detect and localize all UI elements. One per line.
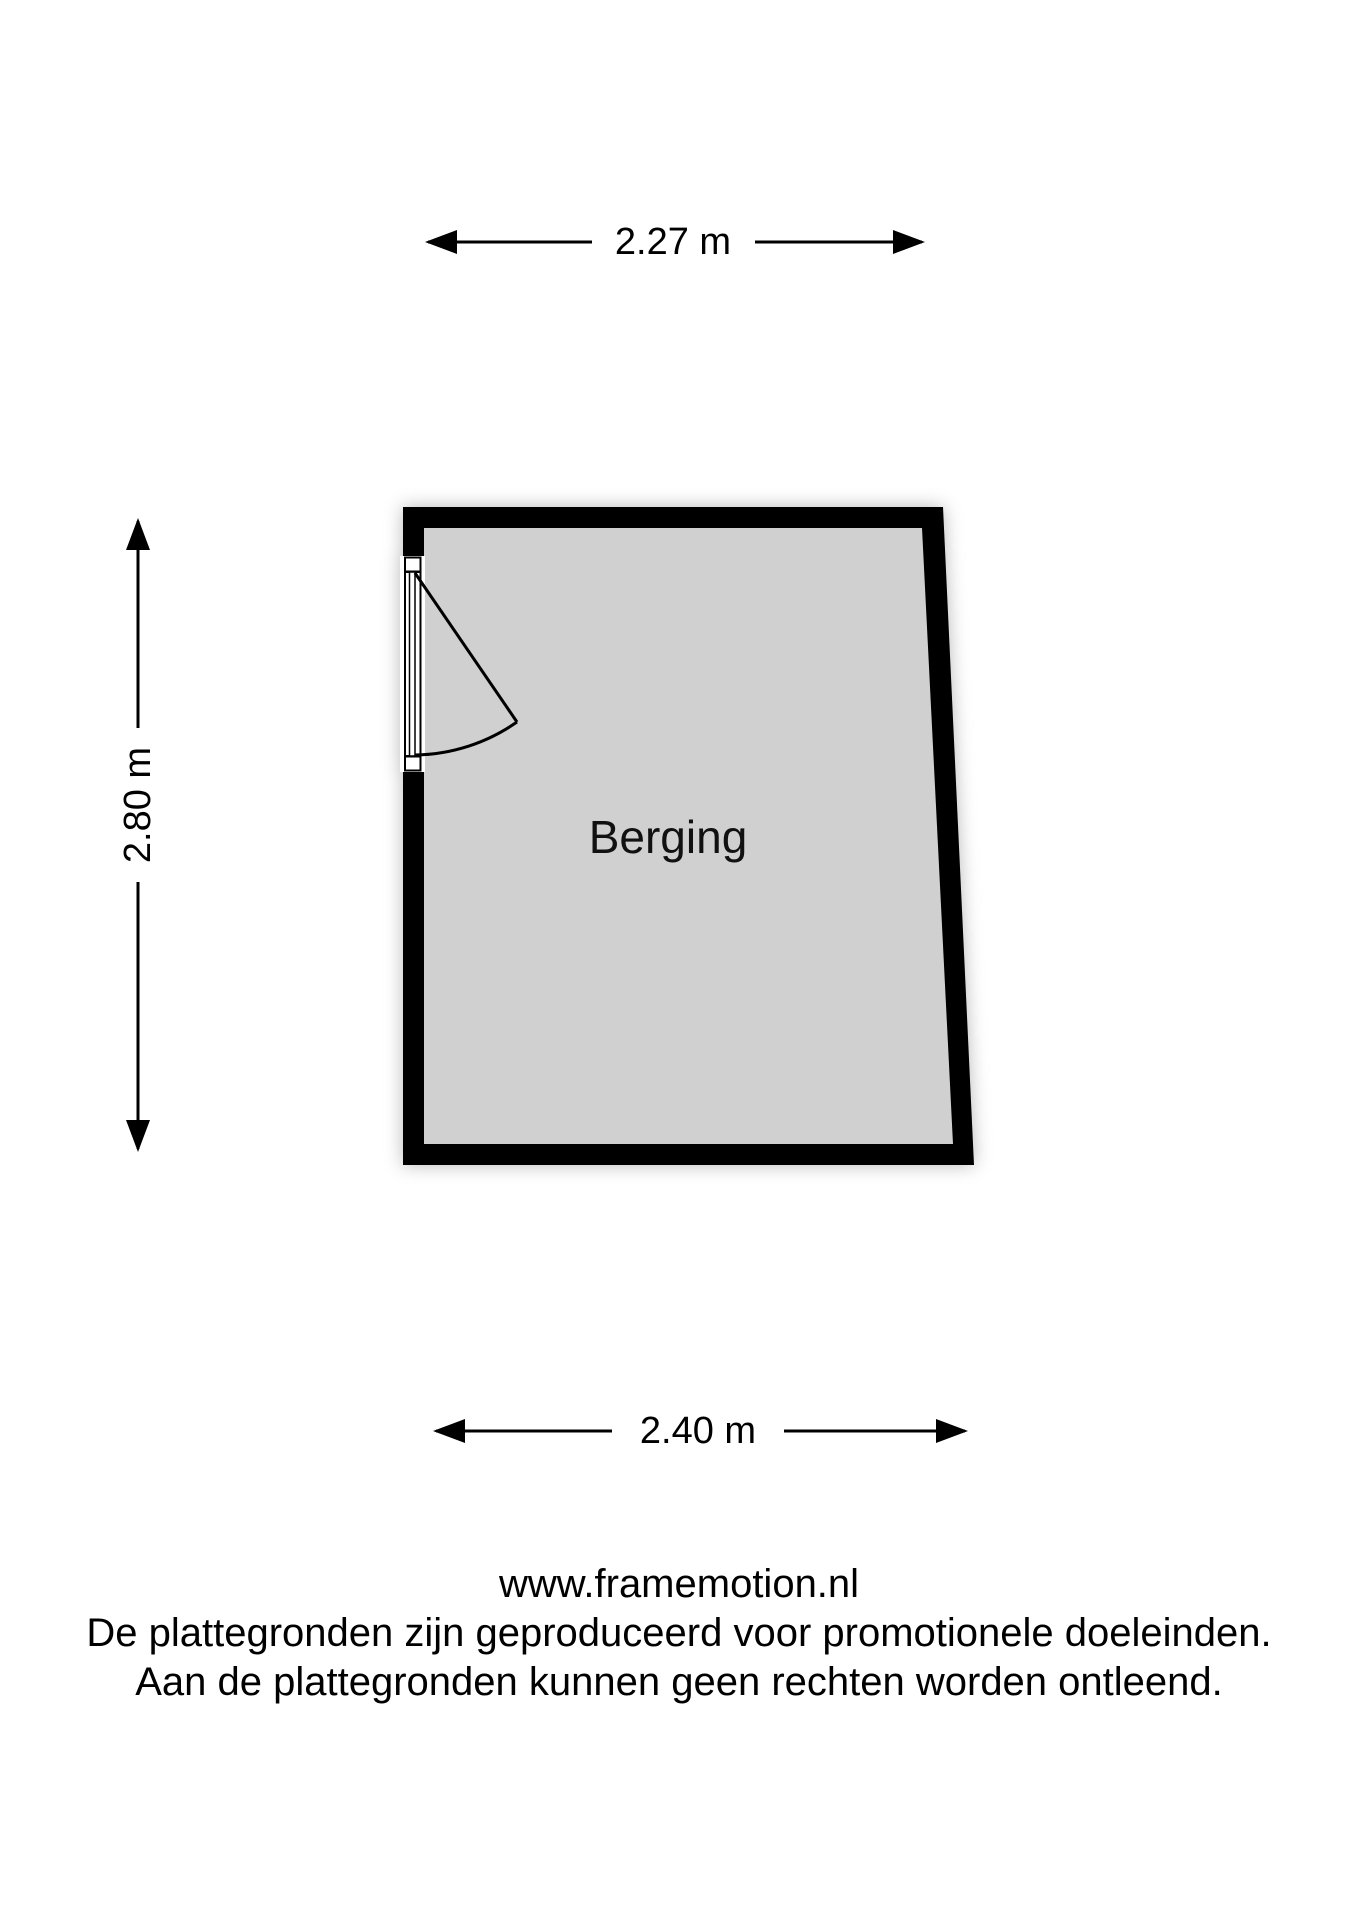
footer-website: www.framemotion.nl xyxy=(0,1560,1358,1609)
door-frame-top xyxy=(405,558,421,572)
arrowhead-left-icon xyxy=(433,1419,465,1443)
arrowhead-right-icon xyxy=(893,230,925,254)
door-frame-bottom xyxy=(405,757,421,771)
dimension-label-top: 2.27 m xyxy=(593,219,753,265)
arrowhead-down-icon xyxy=(126,1120,150,1152)
footer-disclaimer-line1: De plattegronden zijn geproduceerd voor … xyxy=(0,1609,1358,1658)
dimension-label-left: 2.80 m xyxy=(115,725,161,885)
footer-disclaimer-line2: Aan de plattegronden kunnen geen rechten… xyxy=(0,1658,1358,1707)
arrowhead-right-icon xyxy=(936,1419,968,1443)
arrowhead-up-icon xyxy=(126,518,150,550)
dimension-label-bottom: 2.40 m xyxy=(618,1408,778,1454)
room-name-label: Berging xyxy=(568,812,768,862)
door-panel-inner xyxy=(410,572,416,756)
floorplan-canvas: 2.27 m 2.80 m 2.40 m Berging www.framemo… xyxy=(0,0,1358,1920)
footer: www.framemotion.nl De plattegronden zijn… xyxy=(0,1560,1358,1707)
arrowhead-left-icon xyxy=(425,230,457,254)
